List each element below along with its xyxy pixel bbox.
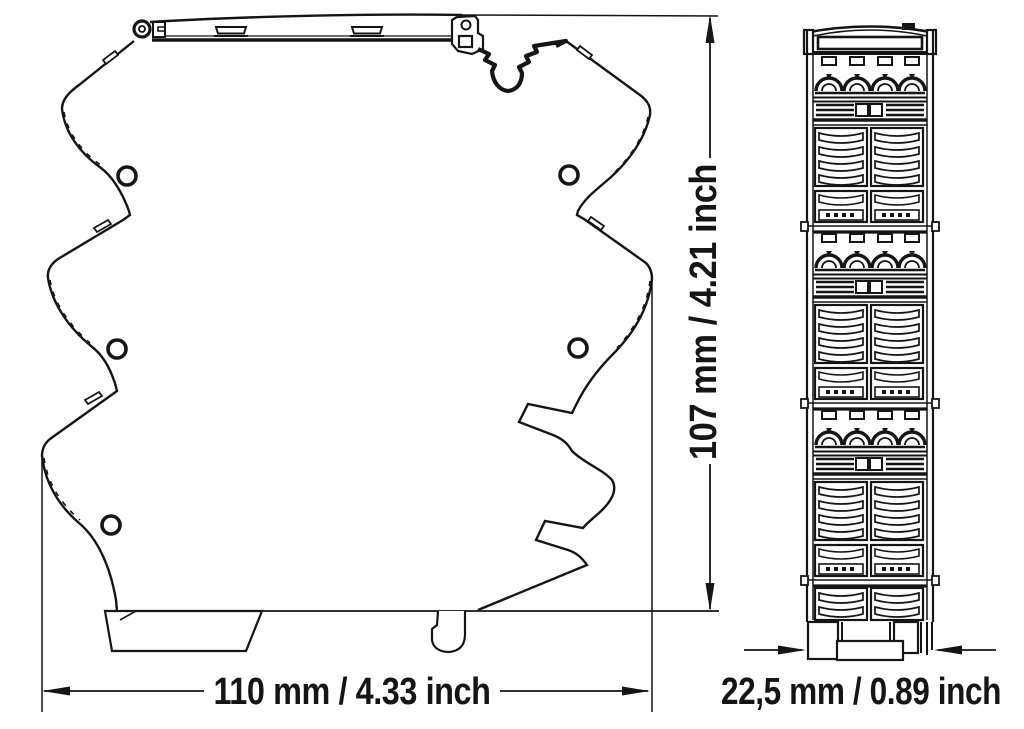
housing-outline-right [478,41,652,610]
edge-tabs [85,46,604,404]
drawing-svg: 107 mm / 4.21 inch 110 mm / 4.33 inch 22… [0,0,1024,729]
din-rail-bar [150,15,462,40]
side-view-drawing [42,15,719,652]
arrowhead-down [706,583,715,611]
depth-dimension-label: 22,5 mm / 0.89 inch [721,671,1001,713]
arrowhead-right [622,687,650,696]
front-module-1 [801,57,939,232]
height-dimension: 107 mm / 4.21 inch [683,15,725,611]
front-module-2 [801,234,939,409]
dimension-drawing-page: 107 mm / 4.21 inch 110 mm / 4.33 inch 22… [0,0,1024,729]
width-dimension: 110 mm / 4.33 inch [42,671,650,713]
housing-holes [102,166,587,534]
extension-line-top [462,15,718,16]
arrowhead-inward-right [778,646,806,655]
rail-slot [214,27,384,36]
front-rail-foot [808,622,932,660]
arrowhead-inward-left [934,646,962,655]
latch-hook-wave [478,41,566,91]
rail-pivot [134,21,165,37]
front-module-3 [801,411,939,586]
front-view-drawing [801,23,939,660]
mounting-feet [105,611,465,652]
height-dimension-label: 107 mm / 4.21 inch [683,164,725,460]
width-dimension-label: 110 mm / 4.33 inch [214,671,491,713]
front-bottom-louvers [815,588,923,620]
front-top-cap [804,23,936,54]
arrowhead-left [42,687,70,696]
arrowhead-up [706,15,715,43]
